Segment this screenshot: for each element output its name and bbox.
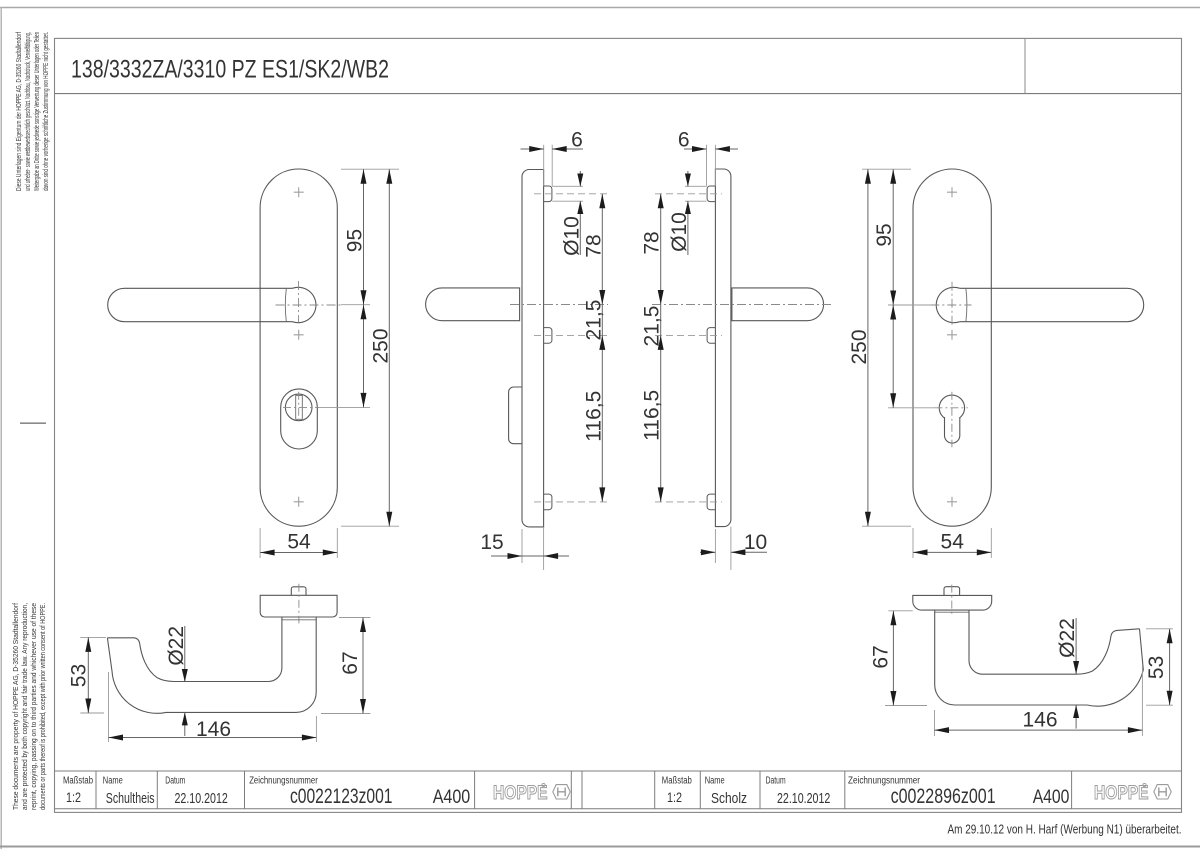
svg-text:116,5: 116,5 xyxy=(582,391,605,442)
svg-text:Weitergabe an Dritte sowie jed: Weitergabe an Dritte sowie jedwede sonst… xyxy=(32,32,41,191)
svg-text:95: 95 xyxy=(344,229,367,252)
svg-text:Maßstab: Maßstab xyxy=(63,776,93,787)
svg-text:These documents are property o: These documents are property of HOPPE AG… xyxy=(11,602,20,810)
svg-text:146: 146 xyxy=(196,718,231,741)
svg-text:HOPPE: HOPPE xyxy=(1094,781,1149,803)
svg-text:22.10.2012: 22.10.2012 xyxy=(777,790,830,807)
svg-text:21,5: 21,5 xyxy=(582,300,605,341)
svg-text:78: 78 xyxy=(641,231,664,254)
svg-text:Ø10: Ø10 xyxy=(668,212,691,252)
svg-text:21,5: 21,5 xyxy=(641,306,664,347)
svg-text:Ø22: Ø22 xyxy=(165,626,188,666)
svg-text:95: 95 xyxy=(873,223,896,246)
svg-text:15: 15 xyxy=(480,531,503,554)
svg-text:6: 6 xyxy=(678,128,690,151)
svg-text:Diese Unterlagen sind Eigentum: Diese Unterlagen sind Eigentum der HOPPE… xyxy=(14,31,23,191)
svg-text:Ø22: Ø22 xyxy=(1056,618,1079,658)
svg-text:Am 29.10.12 von H. Harf (Werbu: Am 29.10.12 von H. Harf (Werbung N1) übe… xyxy=(948,823,1182,837)
svg-text:Name: Name xyxy=(103,776,123,787)
svg-text:HOPPE: HOPPE xyxy=(493,781,548,803)
svg-text:reprint, copying, passing on t: reprint, copying, passing on to third pa… xyxy=(29,603,38,810)
svg-text:documents or parts thereof is: documents or parts thereof is prohibited… xyxy=(38,603,47,810)
svg-text:Name: Name xyxy=(705,776,725,787)
svg-text:22.10.2012: 22.10.2012 xyxy=(175,790,228,807)
svg-text:54: 54 xyxy=(941,530,965,553)
svg-text:1:2: 1:2 xyxy=(66,789,81,805)
svg-text:10: 10 xyxy=(744,531,767,554)
svg-text:78: 78 xyxy=(582,234,605,257)
svg-text:250: 250 xyxy=(369,328,392,363)
svg-text:54: 54 xyxy=(287,530,311,553)
svg-text:Schultheis: Schultheis xyxy=(106,790,155,807)
svg-text:Datum: Datum xyxy=(165,776,185,787)
svg-text:c0022123z001: c0022123z001 xyxy=(290,785,393,808)
svg-text:1:2: 1:2 xyxy=(667,789,682,805)
svg-text:116,5: 116,5 xyxy=(641,390,664,441)
svg-text:250: 250 xyxy=(848,329,871,364)
svg-text:und urheber- sowie wettbewerbs: und urheber- sowie wettbewerbsrechtlich … xyxy=(23,32,32,191)
svg-text:6: 6 xyxy=(571,128,583,151)
svg-text:A400: A400 xyxy=(1033,787,1070,808)
svg-text:Ø10: Ø10 xyxy=(560,216,583,256)
svg-text:53: 53 xyxy=(1145,656,1168,679)
svg-text:67: 67 xyxy=(339,651,362,674)
svg-text:and are protected by both copy: and are protected by both copyright and … xyxy=(20,603,29,810)
svg-text:Datum: Datum xyxy=(766,776,786,787)
svg-text:67: 67 xyxy=(869,645,892,668)
svg-text:Scholz: Scholz xyxy=(711,790,747,807)
svg-text:Maßstab: Maßstab xyxy=(662,776,692,787)
svg-text:138/3332ZA/3310 PZ ES1/SK2/WB2: 138/3332ZA/3310 PZ ES1/SK2/WB2 xyxy=(71,56,389,84)
svg-text:c0022896z001: c0022896z001 xyxy=(891,785,996,808)
svg-text:A400: A400 xyxy=(433,787,471,808)
svg-text:53: 53 xyxy=(67,664,90,687)
svg-text:davon sind ohne vorherige schr: davon sind ohne vorherige schriftliche Z… xyxy=(41,32,50,191)
svg-text:146: 146 xyxy=(1022,709,1057,732)
